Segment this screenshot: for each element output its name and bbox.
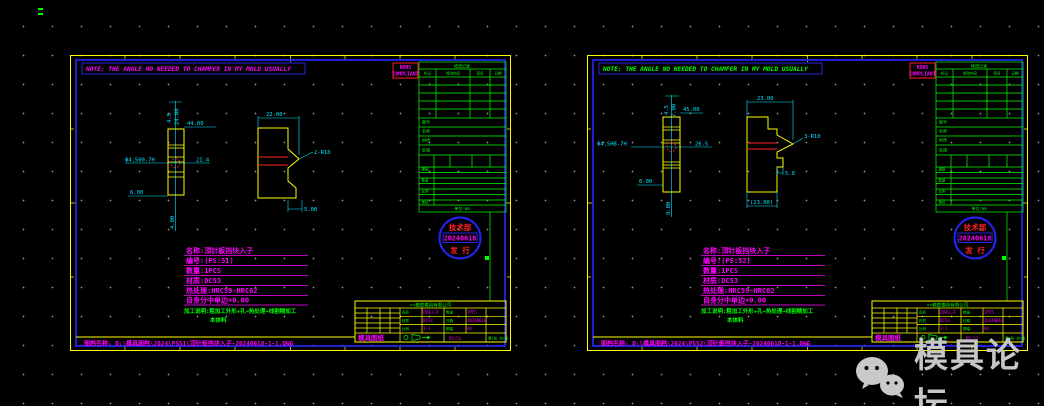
field-value: 1PCS <box>984 310 994 315</box>
rev-row-label: 单位 <box>422 200 430 205</box>
rev-col-header: 标记 <box>941 71 949 76</box>
rev-table-frame <box>419 62 506 212</box>
part-section-lines <box>168 145 184 177</box>
hole-callout: Φ4.5H8-7H <box>597 142 627 148</box>
spec-line: 热处理:HRC59~HRC62 <box>703 286 775 295</box>
rev-row-label: 比例 <box>939 189 947 194</box>
dim-step: 5.0 <box>785 171 795 177</box>
zone-mark <box>485 256 489 260</box>
field-label: 品名 <box>919 310 926 315</box>
dim-top-a: 4.5 <box>167 113 173 123</box>
field-value: DC53 <box>423 318 433 323</box>
hole-callout: Φ4.500-7H <box>125 158 155 164</box>
canvas-corner-mark <box>38 8 43 10</box>
company-name: ××精密模具有限公司 <box>927 302 968 309</box>
dim-width: 45.00 <box>683 107 700 113</box>
note-banner-text: NOTE: THE ANGLE NO NEEDED TO CHAMFER IN … <box>85 66 292 73</box>
rev-row-label: 硬度 <box>422 167 430 172</box>
process-note: 加工说明:粗加工外形+孔→热处理→线割精加工 <box>700 307 814 315</box>
dim-bottom-v: 4.00 <box>170 216 176 229</box>
spec-line: 名称:顶针板挡块入子 <box>703 246 770 255</box>
field-label: 材质 <box>919 318 927 323</box>
rev-row-label: 处理 <box>939 147 947 153</box>
field-value: 1PCS <box>467 310 477 315</box>
rev-table-grid <box>936 69 1023 205</box>
drawing-no: PS:51 <box>449 336 462 341</box>
part-outline <box>747 117 793 192</box>
dim-top-b: 7.00 <box>672 104 678 117</box>
dim-top: 22.00 <box>266 112 283 118</box>
rev-row-label: 硬度 <box>939 167 947 172</box>
projection-symbol-icon <box>404 335 430 341</box>
process-note: 加工说明:粗加工外形+孔→热处理→线割精加工 <box>183 307 297 315</box>
field-value: 20240618 <box>984 318 1004 323</box>
field-label: 日期 <box>963 318 971 323</box>
drawing-sheet-right: NOTE: THE ANGLE NO NEEDED TO CHAMFER IN … <box>587 55 1028 351</box>
stamp-dept: 技术部 <box>449 222 472 232</box>
dim-bottom: 6.00 <box>639 179 652 185</box>
spec-line: 热处理:HRC59~HRC62 <box>186 286 258 295</box>
rev-col-header: 日期 <box>1012 71 1020 76</box>
spec-line: 编号:(PS:51) <box>186 256 234 265</box>
front-view: 44.00 4.5 24.00 21.4 Φ4.500-7H 6.00 4.00 <box>125 101 216 231</box>
radius-callout: 3-R10 <box>804 134 821 140</box>
dim-width: 44.00 <box>187 121 204 127</box>
field-label: 数量 <box>446 310 454 315</box>
dim-bottom-v: 9.00 <box>666 202 672 215</box>
field-label: 品名 <box>402 310 409 315</box>
note-banner: NOTE: THE ANGLE NO NEEDED TO CHAMFER IN … <box>82 63 305 74</box>
footer-path: 图档名称: D:\模具图档\2024\PS52\顶针板挡块入子-20240618… <box>601 340 811 348</box>
rev-row-label: 图号 <box>939 119 947 125</box>
dim-mid: 21.4 <box>196 158 210 164</box>
dim-bottom: 5.00 <box>304 207 317 213</box>
front-view: 45.00 4.5 7.00 26.5 Φ4.5H8-7H 6.00 9.00 <box>597 95 712 217</box>
dim-mid: 26.5 <box>695 142 708 148</box>
spec-line: 材质:DC53 <box>185 276 221 285</box>
rev-row-label: 图号 <box>422 119 430 125</box>
field-value: 20240618 <box>467 318 487 323</box>
field-label: 数量 <box>963 310 971 315</box>
rohs-line1: ROHS <box>917 65 929 71</box>
rev-table-unit: 单位:mm <box>971 205 987 211</box>
spec-line: 名称:顶针板挡块入子 <box>186 246 253 255</box>
rev-row-label: 单位 <box>939 200 947 205</box>
dim-bottom: 6.00 <box>130 190 143 196</box>
rev-col-header: 日期 <box>495 71 503 76</box>
stamp-issue: 发 行 <box>449 245 470 255</box>
stamp-dept: 技术部 <box>964 222 987 232</box>
rev-col-header: 签名 <box>994 71 1001 76</box>
rohs-line1: ROHS <box>400 65 412 71</box>
dim-top-b: 24.00 <box>175 108 181 125</box>
dim-bottom: (23.00) <box>750 200 773 206</box>
rev-table-grid <box>419 69 506 205</box>
rohs-line2: COMPLIANT <box>393 72 419 78</box>
field-label: 材质 <box>402 318 410 323</box>
rev-col-header: 签名 <box>477 71 484 76</box>
part-outline <box>258 128 299 198</box>
doc-type: 模具图纸 <box>358 333 385 342</box>
field-value: A4 <box>467 326 472 331</box>
radius-callout: 2-R10 <box>314 150 331 156</box>
rev-table-title: 修改记录 <box>454 63 470 69</box>
field-label: 比例 <box>402 326 410 331</box>
red-section-lines <box>747 143 777 149</box>
page-label: 第1张 共1张 <box>488 336 509 341</box>
rev-col-header: 修改内容 <box>963 71 977 76</box>
note-banner-text: NOTE: THE ANGLE NO NEEDED TO CHAMFER IN … <box>602 66 809 73</box>
spec-line: 自身分中单边+0.00 <box>186 296 249 305</box>
side-view: 22.00 2-R10 5.00 <box>258 112 331 213</box>
watermark-text: 模具论坛 <box>914 328 1044 406</box>
rev-row-label: 比例 <box>422 189 430 194</box>
spec-line: 自身分中单边+0.00 <box>703 296 766 305</box>
dim-top-a: 4.5 <box>664 105 670 115</box>
rev-row-label: 名称 <box>422 128 430 134</box>
rev-table: 修改记录 标记 修改内容 签名 日期 图号 名称 材质 处理 硬度 数量 比例 … <box>419 62 506 212</box>
stamp-date: 20240618 <box>959 235 992 243</box>
field-value: 1:1 <box>423 326 431 331</box>
zone-mark <box>1002 256 1006 260</box>
stamp-issue: 发 行 <box>964 245 985 255</box>
note-banner: NOTE: THE ANGLE NO NEEDED TO CHAMFER IN … <box>599 63 822 74</box>
field-value: 挡块入子 <box>940 309 956 315</box>
canvas-corner-mark <box>38 13 43 15</box>
rev-table: 修改记录 标记 修改内容 签名 日期 图号 名称 材质 处理 硬度 数量 比例 … <box>936 62 1023 212</box>
approval-stamp: 技术部 20240618 发 行 <box>440 218 481 259</box>
rev-table-unit: 单位:mm <box>454 205 470 211</box>
rohs-stamp: ROHS COMPLIANT <box>393 63 419 78</box>
process-note-2: 本体料 <box>210 316 227 324</box>
rev-row-label: 名称 <box>939 128 947 134</box>
drawing-sheet-left: NOTE: THE ANGLE NO NEEDED TO CHAMFER IN … <box>70 55 511 351</box>
rev-row-label: 处理 <box>422 147 430 153</box>
rev-col-header: 标记 <box>424 71 432 76</box>
title-block: ××精密模具有限公司 品名 挡块入子 数量 1PCS 材质 DC53 日期 20… <box>355 301 509 342</box>
field-label: 图幅 <box>446 326 454 331</box>
spec-list: 名称:顶针板挡块入子 编号:(PS:51) 数量:1PCS 材质:DC53 热处… <box>183 246 308 324</box>
spec-line: 编号:(PS:52) <box>703 256 751 265</box>
process-note-2: 本体料 <box>727 316 744 324</box>
approval-stamp: 技术部 20240618 发 行 <box>955 218 996 259</box>
rev-row-label: 数量 <box>422 178 430 183</box>
spec-line: 材质:DC53 <box>702 276 738 285</box>
footer-path: 图档名称: D:\模具图档\2024\PS51\顶针板挡块入子-20240618… <box>84 340 294 348</box>
rev-table-frame <box>936 62 1023 212</box>
field-value: 挡块入子 <box>423 309 439 315</box>
rev-col-header: 修改内容 <box>446 71 460 76</box>
rev-table-title: 修改记录 <box>971 63 987 69</box>
wechat-icon <box>854 355 906 399</box>
dim-top: 23.00 <box>757 96 774 102</box>
red-section-lines <box>258 157 288 165</box>
rev-row-label: 材质 <box>939 137 947 143</box>
spec-list: 名称:顶针板挡块入子 编号:(PS:52) 数量:1PCS 材质:DC53 热处… <box>700 246 825 324</box>
rev-row-label: 数量 <box>939 178 947 183</box>
field-label: 日期 <box>446 318 454 323</box>
side-view: 23.00 3-R10 5.0 (23.00) <box>747 96 821 208</box>
field-value: DC53 <box>940 318 950 323</box>
watermark: 模具论坛 <box>854 328 1044 406</box>
rev-row-label: 材质 <box>422 137 430 143</box>
cad-canvas: NOTE: THE ANGLE NO NEEDED TO CHAMFER IN … <box>0 0 1044 406</box>
spec-line: 数量:1PCS <box>703 266 738 275</box>
spec-line: 数量:1PCS <box>186 266 221 275</box>
stamp-date: 20240618 <box>444 235 477 243</box>
rohs-line2: COMPLIANT <box>910 72 936 78</box>
company-name: ××精密模具有限公司 <box>410 302 451 309</box>
rohs-stamp: ROHS COMPLIANT <box>910 63 936 78</box>
